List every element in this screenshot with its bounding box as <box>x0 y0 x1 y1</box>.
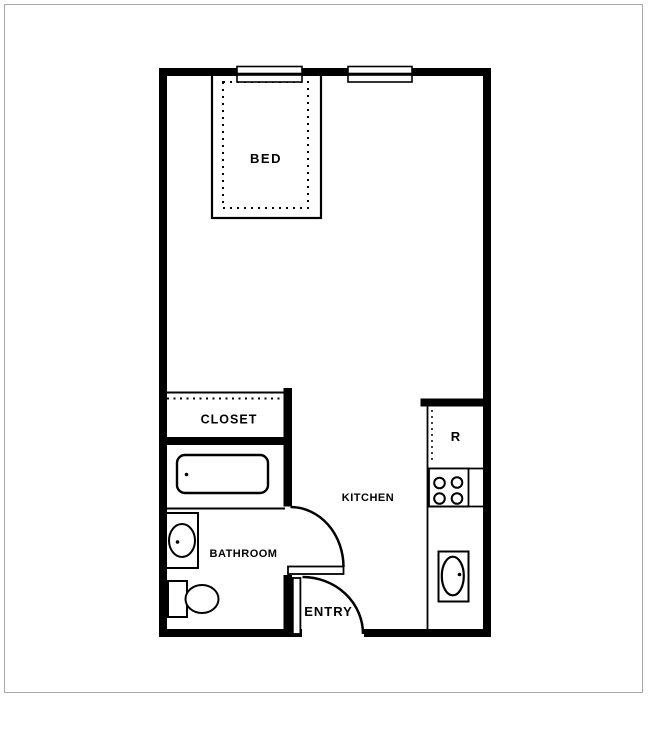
stove-burner <box>434 478 445 489</box>
window-icon <box>348 67 412 83</box>
bathroom-door-leaf <box>288 567 344 575</box>
bathroom-label: BATHROOM <box>210 548 278 560</box>
bathroom-sink-icon <box>166 513 198 568</box>
floor-plan-drawing: BED CLOSET BATHROOM KITCHEN ENTRY R <box>0 0 650 731</box>
window-icon <box>237 67 302 83</box>
wall-top <box>159 68 491 76</box>
toilet-icon <box>168 581 219 617</box>
wall-bottom-left-segment <box>159 629 302 637</box>
wall-right <box>483 68 491 637</box>
bathtub-drain-dot <box>185 473 189 477</box>
wall-bottom-right-segment <box>364 629 491 637</box>
bathtub-icon <box>177 455 268 493</box>
stove-icon <box>429 469 469 507</box>
wall-bathroom-entry <box>284 575 293 637</box>
bed-icon <box>212 72 321 218</box>
bed-label: BED <box>250 151 282 166</box>
wall-closet-bottom <box>159 437 292 445</box>
kitchen-label: KITCHEN <box>342 492 394 504</box>
stove-burner <box>452 477 463 488</box>
entry-label: ENTRY <box>304 604 353 619</box>
kitchen-sink-icon <box>439 552 469 602</box>
stove-burner <box>452 493 463 504</box>
page-frame-border <box>5 5 643 693</box>
wall-closet-bathroom-stub <box>284 388 293 507</box>
refrigerator-label: R <box>451 429 461 444</box>
bathroom-door-icon <box>288 507 344 574</box>
stove-burner <box>434 493 445 504</box>
floor-plan-page: BED CLOSET BATHROOM KITCHEN ENTRY R <box>0 0 650 731</box>
wall-kitchen-top <box>421 399 484 407</box>
entry-door-leaf <box>293 578 301 634</box>
closet-label: CLOSET <box>201 413 258 427</box>
